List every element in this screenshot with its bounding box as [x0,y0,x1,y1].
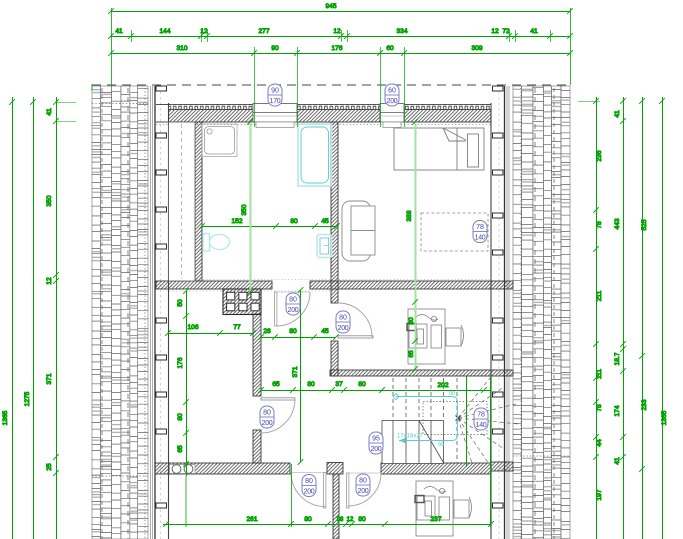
svg-text:945: 945 [325,3,336,10]
svg-text:202: 202 [437,382,448,389]
svg-text:371: 371 [292,366,299,377]
svg-text:41: 41 [530,28,538,35]
svg-text:211: 211 [596,290,603,301]
svg-text:80: 80 [339,315,347,322]
svg-text:525: 525 [641,219,648,230]
svg-text:65: 65 [177,445,184,453]
svg-text:28: 28 [263,328,271,335]
svg-text:144: 144 [159,28,170,35]
svg-text:200: 200 [304,488,315,495]
svg-text:80: 80 [305,478,313,485]
svg-text:80: 80 [177,413,184,421]
svg-text:200: 200 [371,446,382,453]
svg-text:200: 200 [338,325,349,332]
svg-text:90: 90 [438,442,444,448]
svg-text:60: 60 [388,88,396,95]
svg-text:334: 334 [396,28,407,35]
svg-text:80: 80 [359,478,367,485]
svg-text:80: 80 [304,516,312,523]
svg-text:310: 310 [176,45,187,52]
svg-text:371: 371 [46,373,53,384]
svg-text:200: 200 [358,488,369,495]
svg-text:12: 12 [333,28,341,35]
svg-text:38: 38 [337,517,344,523]
svg-text:200: 200 [288,307,299,314]
svg-text:350: 350 [241,204,248,215]
svg-text:12: 12 [347,517,354,523]
svg-text:200: 200 [387,98,398,105]
svg-text:65: 65 [272,381,280,388]
svg-text:77: 77 [233,324,241,331]
svg-text:309: 309 [471,45,482,52]
svg-text:12: 12 [491,28,499,35]
svg-text:41: 41 [614,457,621,465]
svg-text:95: 95 [372,436,380,443]
svg-text:80: 80 [358,516,366,523]
svg-text:140: 140 [475,234,486,241]
svg-text:237: 237 [430,516,441,523]
svg-text:12: 12 [46,277,53,285]
svg-text:443: 443 [614,218,621,229]
svg-text:80: 80 [358,381,366,388]
svg-text:72: 72 [502,28,510,35]
svg-text:170: 170 [270,98,281,105]
svg-text:25: 25 [46,463,53,471]
svg-text:1275: 1275 [24,391,31,406]
svg-text:106: 106 [187,324,198,331]
svg-text:41: 41 [46,108,53,116]
svg-text:78: 78 [596,404,603,412]
svg-text:197: 197 [596,489,603,500]
svg-text:80: 80 [263,410,271,417]
svg-text:350: 350 [46,195,53,206]
svg-text:17x18x27: 17x18x27 [397,434,424,440]
svg-text:1365: 1365 [2,410,9,425]
svg-text:80: 80 [408,317,415,325]
svg-text:176: 176 [177,357,184,368]
svg-text:18.7: 18.7 [614,352,621,365]
svg-text:44: 44 [596,439,603,447]
svg-text:80: 80 [289,328,297,335]
svg-text:37: 37 [335,381,343,388]
svg-text:80: 80 [307,381,315,388]
svg-text:261: 261 [246,516,257,523]
svg-text:80: 80 [289,297,297,304]
svg-text:140: 140 [476,422,487,429]
svg-text:45: 45 [321,328,329,335]
svg-text:41: 41 [614,110,621,118]
svg-text:65: 65 [408,350,415,358]
svg-text:200: 200 [262,420,273,427]
svg-text:60: 60 [386,45,394,52]
svg-text:233: 233 [641,399,648,410]
svg-text:1365: 1365 [661,410,668,425]
svg-text:41: 41 [115,28,123,35]
svg-text:12: 12 [200,28,208,35]
svg-text:90: 90 [271,88,279,95]
svg-text:78: 78 [596,221,603,229]
svg-text:45: 45 [321,218,329,225]
svg-text:50: 50 [177,299,184,307]
svg-text:90: 90 [449,391,455,397]
svg-text:90: 90 [271,45,279,52]
svg-text:78: 78 [476,224,484,231]
svg-text:176: 176 [331,45,342,52]
svg-text:111: 111 [596,369,603,379]
svg-text:80: 80 [290,218,298,225]
svg-text:236: 236 [596,150,603,161]
svg-text:388: 388 [406,210,413,221]
svg-text:152: 152 [231,218,242,225]
svg-text:277: 277 [258,28,269,35]
svg-text:174: 174 [614,405,621,416]
svg-text:78: 78 [477,412,485,419]
